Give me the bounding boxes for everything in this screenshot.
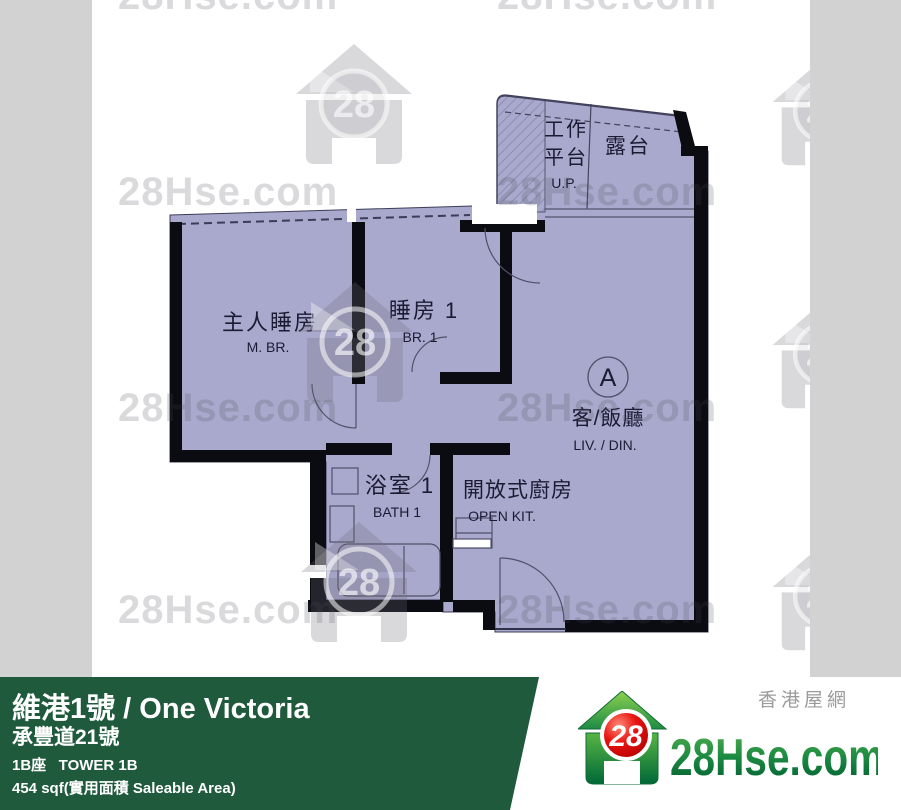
label-bedroom1-en: BR. 1: [402, 329, 437, 345]
floorplan-canvas: 28 28Hse.com 28Hse.com 28Hse.com 28Hse.c…: [0, 0, 901, 677]
label-master-bedroom-en: M. BR.: [247, 339, 290, 355]
label-bathroom1-zh: 浴室 1: [365, 473, 435, 498]
estate-address: 承豐道21號: [12, 721, 119, 751]
brand-house-icon: 28: [578, 691, 666, 784]
label-utility-platform-zh2: 平台: [544, 146, 588, 169]
info-bar: 維港1號 / One Victoria 承豐道21號 1B座 TOWER 1B …: [0, 677, 901, 810]
label-utility-platform-zh1: 工作: [544, 118, 588, 141]
label-living-dining-en: LIV. / DIN.: [573, 437, 636, 453]
watermark-house-logo: [770, 55, 810, 167]
brand-logo-number: 28: [608, 720, 643, 753]
label-open-kitchen-zh: 開放式廚房: [463, 479, 573, 502]
label-balcony-zh: 露台: [605, 135, 651, 158]
area-label: 454 sqf(實用面積 Saleable Area): [12, 777, 236, 798]
label-living-dining-zh: 客/飯廳: [572, 407, 645, 430]
unit-floor: [170, 95, 708, 632]
entrance-opening: [472, 204, 537, 224]
label-utility-platform-en: U.P.: [551, 175, 576, 191]
right-edge-watermarks: [760, 0, 810, 677]
brand-site-name: 28Hse.com: [670, 728, 878, 786]
right-gray-strip: [810, 0, 901, 677]
label-master-bedroom-zh: 主人睡房: [222, 310, 318, 335]
hatched-area: [497, 96, 545, 212]
28hse-logo[interactable]: 28 28Hse.com: [578, 691, 878, 801]
left-gray-strip: [0, 0, 92, 677]
unit-label: A: [600, 364, 617, 392]
tower-label: 1B座 TOWER 1B: [12, 754, 138, 775]
label-bathroom1-en: BATH 1: [373, 504, 421, 520]
watermark-house-logo: [770, 540, 810, 652]
label-open-kitchen-en: OPEN KIT.: [468, 508, 536, 524]
floorplan-page: 28 28Hse.com 28Hse.com 28Hse.com 28Hse.c…: [0, 0, 901, 810]
label-bedroom1-zh: 睡房 1: [389, 298, 459, 323]
watermark-house-logo: [770, 298, 810, 410]
